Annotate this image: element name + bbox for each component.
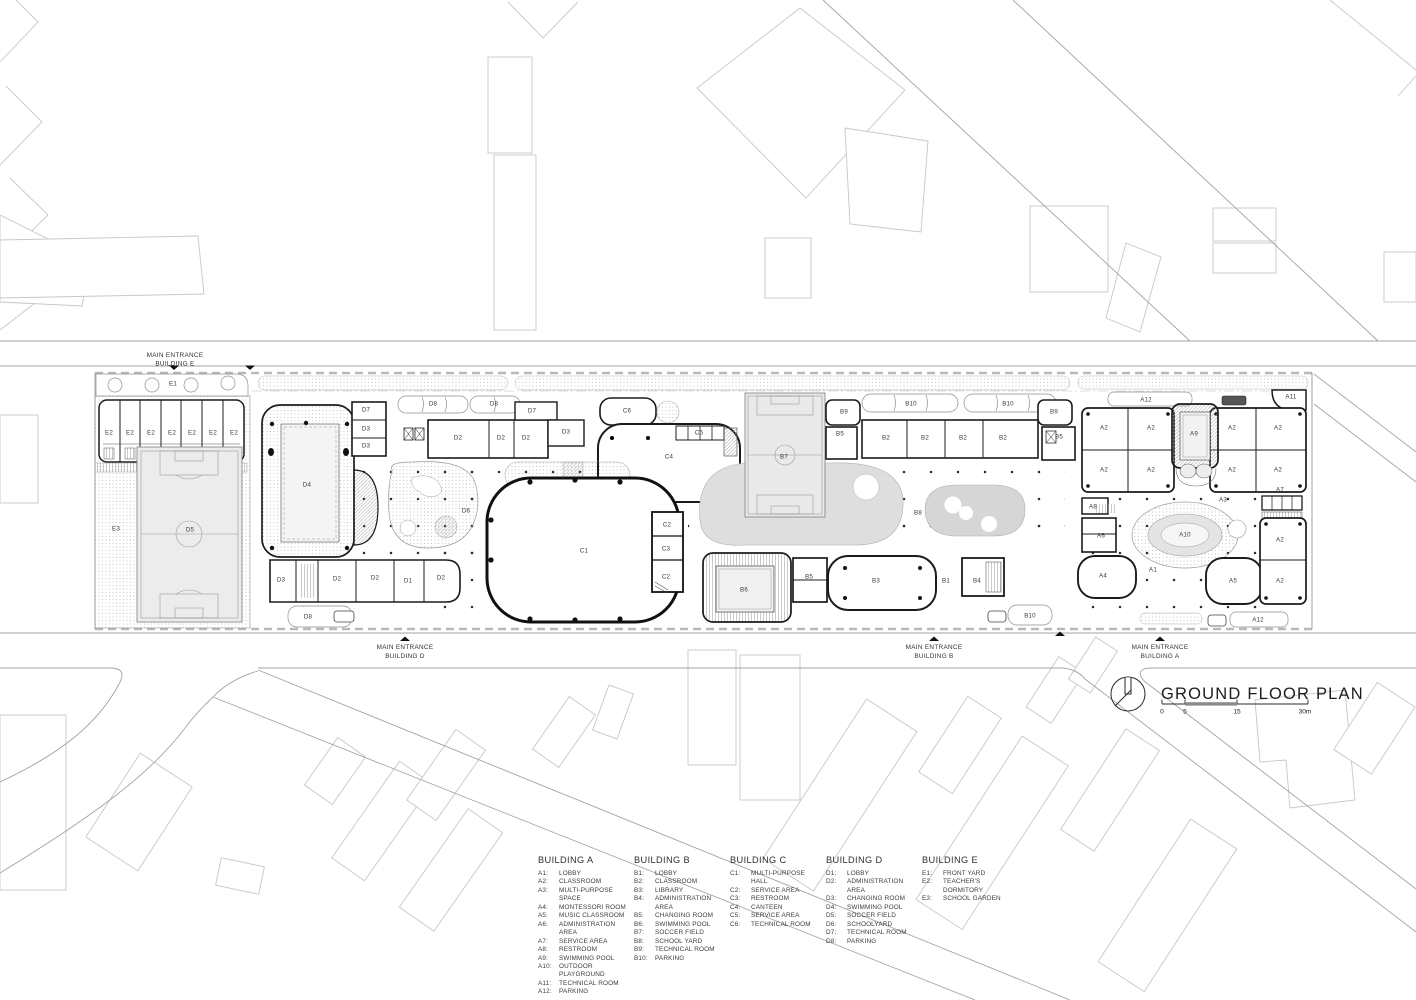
- legend-item: D4:SWIMMING POOL: [826, 904, 918, 912]
- legend-item-name: ADMINISTRATION AREA: [847, 878, 918, 895]
- legend-item-name: SCHOOL YARD: [655, 938, 702, 946]
- legend-item-code: A5:: [538, 912, 559, 920]
- legend-item-name: CANTEEN: [751, 904, 783, 912]
- room-label-a2: A2: [1100, 425, 1108, 432]
- room-label-a6: A6: [1097, 533, 1105, 540]
- legend-header: BUILDING C: [730, 855, 822, 865]
- entrance-d-line1: MAIN ENTRANCE: [377, 644, 434, 651]
- room-label-b2: B2: [999, 435, 1007, 442]
- room-label-e2: E2: [230, 430, 238, 437]
- legend-item: D8:PARKING: [826, 938, 918, 946]
- legend-item-code: B7:: [634, 929, 655, 937]
- legend-item: A1:LOBBY: [538, 870, 630, 878]
- scale-tick-15: 15: [1233, 709, 1241, 716]
- room-label-e2: E2: [126, 430, 134, 437]
- legend-item-name: CLASSROOM: [559, 878, 601, 886]
- tree: [657, 401, 679, 423]
- legend-item-code: C5:: [730, 912, 751, 920]
- entrance-arrow-icon: [400, 637, 410, 642]
- legend-item-code: D4:: [826, 904, 847, 912]
- legend-item: D5:SOCCER FIELD: [826, 912, 918, 920]
- room-label-c3: C3: [662, 546, 671, 553]
- legend-item: C4:CANTEEN: [730, 904, 822, 912]
- scale-tick-30m: 30m: [1299, 709, 1312, 716]
- entrance-b-line1: MAIN ENTRANCE: [906, 644, 963, 651]
- legend-item-name: RESTROOM: [559, 946, 597, 954]
- room-label-a3: A3: [1219, 497, 1227, 504]
- room-label-a10: A10: [1179, 532, 1191, 539]
- legend: BUILDING AA1:LOBBYA2:CLASSROOMA3:MULTI-P…: [538, 855, 1018, 997]
- legend-item-code: B1:: [634, 870, 655, 878]
- legend-item: D7:TECHNICAL ROOM: [826, 929, 918, 937]
- room-label-d8: D8: [490, 401, 499, 408]
- room-label-a5: A5: [1229, 578, 1237, 585]
- legend-item: B4:ADMINISTRATION AREA: [634, 895, 726, 912]
- room-label-e1: E1: [169, 381, 177, 388]
- room-label-e2: E2: [209, 430, 217, 437]
- legend-item: B8:SCHOOL YARD: [634, 938, 726, 946]
- legend-column-building-b: BUILDING BB1:LOBBYB2:CLASSROOMB3:LIBRARY…: [634, 855, 730, 997]
- legend-item: B9:TECHNICAL ROOM: [634, 946, 726, 954]
- legend-item-code: C1:: [730, 870, 751, 887]
- room-label-d2: D2: [522, 435, 531, 442]
- room-label-d2: D2: [371, 575, 380, 582]
- legend-item: B5:CHANGING ROOM: [634, 912, 726, 920]
- legend-item: A4:MONTESSORI ROOM: [538, 904, 630, 912]
- legend-item-code: E2:: [922, 878, 943, 895]
- room-label-b10: B10: [1024, 613, 1036, 620]
- room-label-b3: B3: [872, 578, 880, 585]
- room-label-c4: C4: [665, 454, 674, 461]
- entrance-b-line2: BUILDING B: [914, 653, 953, 660]
- legend-item-name: ADMINISTRATION AREA: [559, 921, 630, 938]
- legend-item-name: SCHOOL GARDEN: [943, 895, 1001, 903]
- legend-header: BUILDING E: [922, 855, 1014, 865]
- legend-item: A8:RESTROOM: [538, 946, 630, 954]
- entrance-arrow-icon: [1155, 637, 1165, 642]
- room-label-e2: E2: [105, 430, 113, 437]
- legend-item-code: B4:: [634, 895, 655, 912]
- legend-item-code: A4:: [538, 904, 559, 912]
- room-label-d5: D5: [186, 527, 195, 534]
- legend-item: B3:LIBRARY: [634, 887, 726, 895]
- legend-item-code: A2:: [538, 878, 559, 886]
- legend-column-building-a: BUILDING AA1:LOBBYA2:CLASSROOMA3:MULTI-P…: [538, 855, 634, 997]
- entrance-building-a: MAIN ENTRANCE BUILDING A: [1132, 637, 1189, 661]
- legend-item-code: A8:: [538, 946, 559, 954]
- room-label-a2: A2: [1276, 537, 1284, 544]
- room-label-b2: B2: [882, 435, 890, 442]
- building-e: [95, 374, 250, 628]
- legend-item-name: LOBBY: [655, 870, 677, 878]
- room-label-a2: A2: [1100, 467, 1108, 474]
- room-label-a7: A7: [1276, 487, 1284, 494]
- legend-item-code: A7:: [538, 938, 559, 946]
- legend-item: E2:TEACHER'S DORMITORY: [922, 878, 1014, 895]
- legend-column-building-c: BUILDING CC1:MULTI-PURPOSE HALLC2:SERVIC…: [730, 855, 826, 997]
- room-label-a12: A12: [1252, 617, 1264, 624]
- room-label-d2: D2: [437, 575, 446, 582]
- legend-item: C3:RESTROOM: [730, 895, 822, 903]
- legend-item-name: MUSIC CLASSROOM: [559, 912, 624, 920]
- room-label-b10: B10: [1002, 401, 1014, 408]
- legend-item: C2:SERVICE AREA: [730, 887, 822, 895]
- legend-item: A7:SERVICE AREA: [538, 938, 630, 946]
- room-label-c2: C2: [663, 522, 672, 529]
- room-label-a2: A2: [1147, 425, 1155, 432]
- room-label-d3: D3: [277, 577, 286, 584]
- legend-item-name: LOBBY: [559, 870, 581, 878]
- room-label-b9: B9: [1050, 409, 1058, 416]
- legend-item-name: CHANGING ROOM: [655, 912, 713, 920]
- room-label-a11: A11: [1285, 394, 1297, 401]
- legend-item-code: B6:: [634, 921, 655, 929]
- car-symbol: [1208, 615, 1226, 626]
- d6-schoolyard: [388, 462, 478, 549]
- legend-item: B6:SWIMMING POOL: [634, 921, 726, 929]
- legend-item: C1:MULTI-PURPOSE HALL: [730, 870, 822, 887]
- legend-item-code: C2:: [730, 887, 751, 895]
- room-label-a2: A2: [1147, 467, 1155, 474]
- legend-item: C6:TECHNICAL ROOM: [730, 921, 822, 929]
- legend-item-name: OUTDOOR PLAYGROUND: [559, 963, 630, 980]
- legend-item-code: A1:: [538, 870, 559, 878]
- legend-item-name: SCHOOLYARD: [847, 921, 892, 929]
- legend-item: D2:ADMINISTRATION AREA: [826, 878, 918, 895]
- legend-item-name: LOBBY: [847, 870, 869, 878]
- d5-soccer-field: [137, 447, 242, 622]
- legend-item: E3:SCHOOL GARDEN: [922, 895, 1014, 903]
- b3-library: [828, 556, 936, 610]
- legend-item-name: SOCCER FIELD: [847, 912, 896, 920]
- legend-item-code: B5:: [634, 912, 655, 920]
- legend-item: D3:CHANGING ROOM: [826, 895, 918, 903]
- site-plan-svg: E1E2E2E2E2E2E2E2E3D5D4D7D3D3D8D8D7D2D2D2…: [0, 0, 1416, 1000]
- legend-item-code: A11:: [538, 980, 559, 988]
- legend-item-name: MONTESSORI ROOM: [559, 904, 626, 912]
- legend-header: BUILDING D: [826, 855, 918, 865]
- room-label-b5: B5: [1055, 434, 1063, 441]
- room-label-e3: E3: [112, 526, 120, 533]
- room-label-d3: D3: [562, 429, 571, 436]
- entrance-building-d: MAIN ENTRANCE BUILDING D: [377, 637, 434, 661]
- entrance-a-line2: BUILDING A: [1141, 653, 1180, 660]
- a2-classrooms-southeast: [1260, 518, 1306, 604]
- room-label-a9: A9: [1190, 431, 1198, 438]
- legend-item: E1:FRONT YARD: [922, 870, 1014, 878]
- legend-item-name: MULTI-PURPOSE HALL: [751, 870, 822, 887]
- legend-item-code: C4:: [730, 904, 751, 912]
- legend-item-name: SWIMMING POOL: [655, 921, 711, 929]
- north-arrow-icon: [1111, 677, 1145, 711]
- room-label-a8: A8: [1089, 504, 1097, 511]
- legend-column-building-e: BUILDING EE1:FRONT YARDE2:TEACHER'S DORM…: [922, 855, 1018, 997]
- a2-classrooms-right: [1210, 408, 1306, 492]
- legend-item: A5:MUSIC CLASSROOM: [538, 912, 630, 920]
- legend-item-code: A9:: [538, 955, 559, 963]
- legend-item: B1:LOBBY: [634, 870, 726, 878]
- room-label-d8: D8: [429, 401, 438, 408]
- room-label-b6: B6: [740, 587, 748, 594]
- d-bottom-rooms: [270, 560, 460, 602]
- b4-administration: [962, 558, 1004, 596]
- car-symbol: [988, 611, 1006, 622]
- legend-item: A6:ADMINISTRATION AREA: [538, 921, 630, 938]
- legend-item-name: SERVICE AREA: [751, 887, 800, 895]
- room-label-d2: D2: [333, 576, 342, 583]
- entrance-arrow-icon: [1055, 632, 1065, 637]
- room-label-a2: A2: [1228, 467, 1236, 474]
- legend-item: A11:TECHNICAL ROOM: [538, 980, 630, 988]
- entrance-d-line2: BUILDING D: [385, 653, 425, 660]
- car-symbol: [334, 611, 354, 622]
- legend-item-code: C6:: [730, 921, 751, 929]
- legend-item-name: TECHNICAL ROOM: [559, 980, 619, 988]
- legend-item-code: D6:: [826, 921, 847, 929]
- room-label-b1: B1: [942, 578, 950, 585]
- legend-header: BUILDING A: [538, 855, 630, 865]
- room-label-a4: A4: [1099, 573, 1107, 580]
- room-label-c5: C5: [695, 430, 704, 437]
- legend-item: B2:CLASSROOM: [634, 878, 726, 886]
- legend-item-name: TEACHER'S DORMITORY: [943, 878, 1014, 895]
- room-label-c1: C1: [580, 548, 589, 555]
- legend-item: A12:PARKING: [538, 988, 630, 996]
- entrance-arrow-icon: [245, 366, 255, 371]
- room-label-b4: B4: [973, 578, 981, 585]
- legend-item-code: D8:: [826, 938, 847, 946]
- legend-item: B10:PARKING: [634, 955, 726, 963]
- room-label-d1: D1: [404, 578, 413, 585]
- legend-item-name: LIBRARY: [655, 887, 683, 895]
- legend-item-code: A10:: [538, 963, 559, 980]
- room-label-e2: E2: [188, 430, 196, 437]
- legend-item-code: B3:: [634, 887, 655, 895]
- room-label-c2: C2: [662, 574, 671, 581]
- legend-item-code: B8:: [634, 938, 655, 946]
- legend-item-name: SOCCER FIELD: [655, 929, 704, 937]
- room-label-d6: D6: [462, 508, 471, 515]
- legend-item-code: A3:: [538, 887, 559, 904]
- room-label-b5: B5: [805, 574, 813, 581]
- room-label-a2: A2: [1276, 578, 1284, 585]
- entrance-building-b: MAIN ENTRANCE BUILDING B: [906, 637, 963, 661]
- legend-item-name: MULTI-PURPOSE SPACE: [559, 887, 630, 904]
- legend-item-code: B2:: [634, 878, 655, 886]
- room-label-b7: B7: [780, 454, 788, 461]
- entrance-building-e: MAIN ENTRANCE BUILDING E: [147, 352, 255, 370]
- legend-item-name: TECHNICAL ROOM: [751, 921, 811, 929]
- legend-item: D1:LOBBY: [826, 870, 918, 878]
- room-label-a2: A2: [1228, 425, 1236, 432]
- room-label-a2: A2: [1274, 467, 1282, 474]
- legend-item: D6:SCHOOLYARD: [826, 921, 918, 929]
- room-label-d3: D3: [362, 443, 371, 450]
- legend-item-code: D1:: [826, 870, 847, 878]
- drawing-title: GROUND FLOOR PLAN: [1161, 685, 1364, 703]
- entrance-arrow-icon: [169, 366, 179, 371]
- scale-tick-5: 5: [1183, 709, 1187, 716]
- legend-item-name: CLASSROOM: [655, 878, 697, 886]
- room-label-b2: B2: [959, 435, 967, 442]
- legend-item-code: C3:: [730, 895, 751, 903]
- room-label-d3: D3: [362, 426, 371, 433]
- room-label-d2: D2: [497, 435, 506, 442]
- room-label-d2: D2: [454, 435, 463, 442]
- room-label-e2: E2: [168, 430, 176, 437]
- legend-header: BUILDING B: [634, 855, 726, 865]
- room-label-b5: B5: [836, 431, 844, 438]
- legend-item-name: SWIMMING POOL: [847, 904, 903, 912]
- room-label-a2: A2: [1274, 425, 1282, 432]
- scale-tick-0: 0: [1160, 709, 1164, 716]
- legend-item-code: A6:: [538, 921, 559, 938]
- legend-item-code: D2:: [826, 878, 847, 895]
- ground-floor-plan-page: E1E2E2E2E2E2E2E2E3D5D4D7D3D3D8D8D7D2D2D2…: [0, 0, 1416, 1000]
- room-label-a12: A12: [1140, 397, 1152, 404]
- room-label-a1: A1: [1149, 567, 1157, 574]
- a2-classrooms-left: [1082, 408, 1174, 492]
- room-label-b8: B8: [914, 510, 922, 517]
- legend-item-name: ADMINISTRATION AREA: [655, 895, 726, 912]
- legend-item-name: SERVICE AREA: [559, 938, 608, 946]
- room-label-d7: D7: [528, 408, 537, 415]
- legend-item-code: E1:: [922, 870, 943, 878]
- legend-item-name: TECHNICAL ROOM: [655, 946, 715, 954]
- room-label-c6: C6: [623, 408, 632, 415]
- legend-item: A3:MULTI-PURPOSE SPACE: [538, 887, 630, 904]
- legend-item-name: FRONT YARD: [943, 870, 985, 878]
- legend-item-name: SWIMMING POOL: [559, 955, 615, 963]
- legend-item: A9:SWIMMING POOL: [538, 955, 630, 963]
- entrance-a-line1: MAIN ENTRANCE: [1132, 644, 1189, 651]
- legend-item-name: CHANGING ROOM: [847, 895, 905, 903]
- legend-item-code: D3:: [826, 895, 847, 903]
- legend-item-code: A12:: [538, 988, 559, 996]
- a4-montessori-room: [1078, 556, 1136, 598]
- legend-item-code: B9:: [634, 946, 655, 954]
- room-label-e2: E2: [147, 430, 155, 437]
- room-label-b9: B9: [840, 409, 848, 416]
- car-symbol: [1222, 396, 1246, 405]
- room-label-b2: B2: [921, 435, 929, 442]
- legend-item: B7:SOCCER FIELD: [634, 929, 726, 937]
- legend-item-name: SERVICE AREA: [751, 912, 800, 920]
- legend-item-code: E3:: [922, 895, 943, 903]
- room-label-b10: B10: [905, 401, 917, 408]
- room-label-d7: D7: [362, 407, 371, 414]
- legend-item: C5:SERVICE AREA: [730, 912, 822, 920]
- legend-item-name: PARKING: [559, 988, 588, 996]
- legend-item-code: D7:: [826, 929, 847, 937]
- legend-item: A2:CLASSROOM: [538, 878, 630, 886]
- legend-item-name: PARKING: [847, 938, 876, 946]
- legend-item-name: TECHNICAL ROOM: [847, 929, 907, 937]
- legend-item-code: B10:: [634, 955, 655, 963]
- entrance-arrow-icon: [929, 637, 939, 642]
- legend-column-building-d: BUILDING DD1:LOBBYD2:ADMINISTRATION AREA…: [826, 855, 922, 997]
- legend-item-code: D5:: [826, 912, 847, 920]
- room-label-d8: D8: [304, 614, 313, 621]
- entrance-e-line1: MAIN ENTRANCE: [147, 352, 204, 359]
- legend-item-name: RESTROOM: [751, 895, 789, 903]
- room-label-d4: D4: [303, 482, 312, 489]
- legend-item: A10:OUTDOOR PLAYGROUND: [538, 963, 630, 980]
- legend-item-name: PARKING: [655, 955, 684, 963]
